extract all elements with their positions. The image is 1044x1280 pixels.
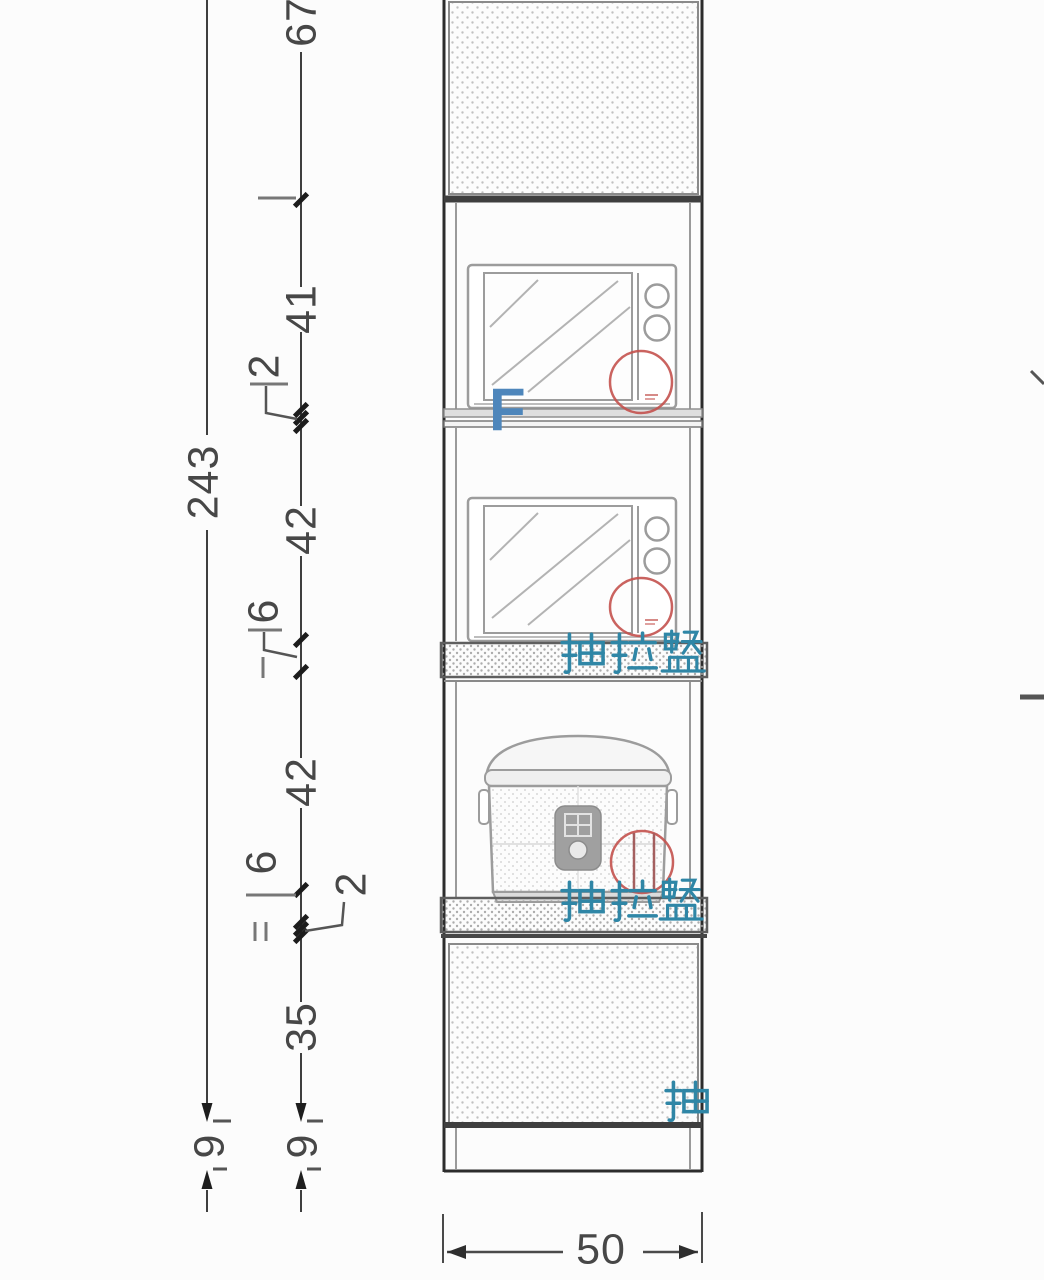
cabinet-elevation-drawing: 67 41 2 243 42 6 42 6 2 35 9 9 50 抽拉盤 抽拉… [0, 0, 1044, 1280]
shelf-under-upper-microwave [444, 409, 702, 427]
dim-label-6a: 6 [240, 599, 289, 624]
microwave-lower [468, 498, 676, 641]
dim-label-2a: 2 [241, 354, 290, 379]
dim-label-6b: 6 [238, 850, 287, 875]
blue-f-annotation: F [489, 380, 526, 440]
left-dimension-chain [202, 0, 232, 1212]
dim-label-42b: 42 [278, 757, 327, 807]
top-door-panel [444, 2, 702, 199]
dim-label-2b: 2 [328, 872, 377, 897]
dim-label-243: 243 [180, 445, 229, 520]
dim-label-41: 41 [278, 284, 327, 334]
edge-marks [1020, 371, 1044, 697]
dim-label-9b: 9 [279, 1134, 328, 1159]
dim-label-35: 35 [278, 1002, 327, 1052]
dim-label-42a: 42 [278, 505, 327, 555]
bottom-door-panel [444, 944, 702, 1125]
dim-label-50: 50 [576, 1226, 626, 1275]
rice-cooker [479, 736, 677, 902]
dim-label-67: 67 [278, 0, 327, 47]
dim-label-9a: 9 [186, 1134, 235, 1159]
rice-cooker-control-panel [555, 806, 601, 870]
drawing-canvas [0, 0, 1044, 1280]
width-dimension [443, 1212, 702, 1263]
